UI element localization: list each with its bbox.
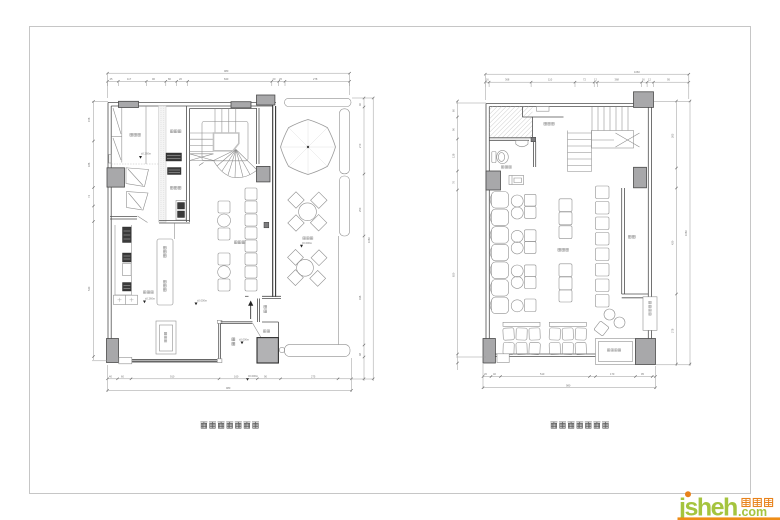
svg-text:275: 275 [311, 375, 316, 379]
svg-text:jsheh: jsheh [678, 494, 737, 520]
svg-text:±0.000m: ±0.000m [302, 241, 312, 245]
svg-text:980: 980 [226, 386, 231, 390]
svg-text:420: 420 [671, 240, 675, 245]
svg-text:±0.000m: ±0.000m [239, 338, 249, 342]
svg-text:170: 170 [610, 372, 615, 376]
svg-text:278: 278 [671, 328, 675, 333]
svg-text:980: 980 [224, 69, 229, 73]
svg-text:368: 368 [615, 78, 620, 82]
svg-text:±0.000m: ±0.000m [197, 299, 207, 303]
svg-text:840: 840 [224, 77, 229, 81]
svg-text:265: 265 [671, 133, 675, 138]
svg-text:278: 278 [313, 77, 318, 81]
svg-text:128: 128 [452, 153, 456, 158]
svg-text:±0.260m: ±0.260m [145, 297, 155, 301]
svg-text:368: 368 [505, 78, 510, 82]
svg-text:1060: 1060 [634, 70, 640, 74]
svg-text:910: 910 [170, 375, 175, 379]
svg-text:±0.000m: ±0.000m [248, 374, 258, 378]
svg-text:117: 117 [127, 77, 132, 81]
svg-text:160: 160 [234, 375, 239, 379]
svg-text:.com: .com [738, 505, 767, 519]
svg-text:1060: 1060 [684, 230, 688, 236]
svg-text:1060: 1060 [367, 237, 371, 243]
svg-text:250: 250 [358, 207, 362, 212]
svg-text:±0.260m: ±0.260m [141, 152, 151, 156]
svg-text:158: 158 [87, 117, 91, 122]
svg-text:540: 540 [87, 286, 91, 291]
svg-text:436: 436 [358, 295, 362, 300]
svg-text:110: 110 [548, 78, 553, 82]
svg-text:980: 980 [566, 383, 571, 387]
svg-text:270: 270 [358, 143, 362, 148]
svg-text:510: 510 [540, 372, 545, 376]
svg-text:650: 650 [452, 272, 456, 277]
svg-text:186: 186 [87, 162, 91, 167]
